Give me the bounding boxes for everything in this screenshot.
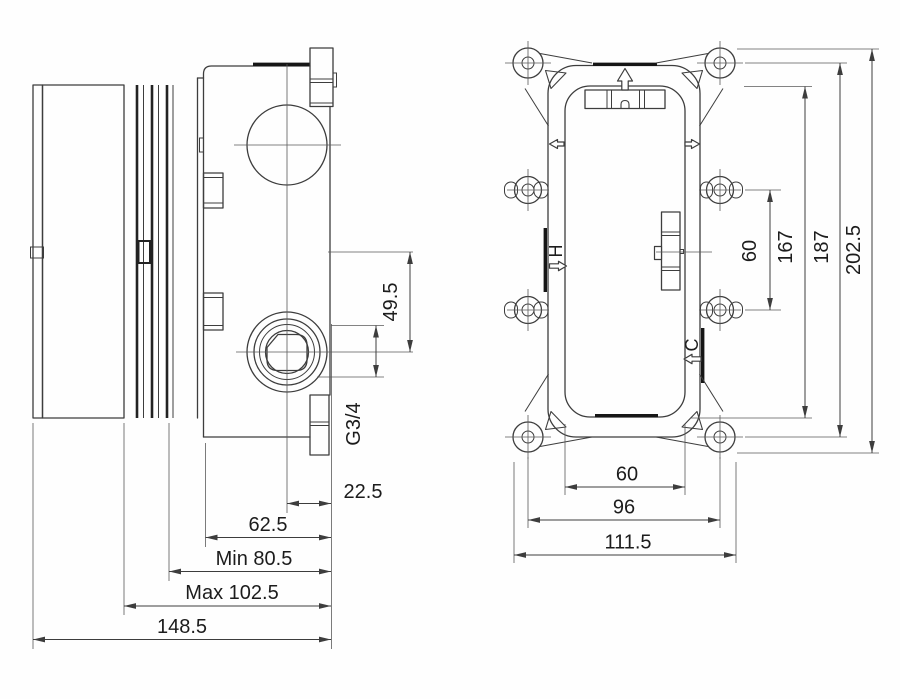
technical-drawing-canvas: 49.5 G3/4 22.5 62.5 — [0, 0, 900, 699]
mounting-holes — [505, 41, 743, 459]
dim-62-5-label: 62.5 — [249, 514, 288, 536]
dim-min-80-5-label: Min 80.5 — [216, 548, 293, 570]
dim-49-5-label: 49.5 — [380, 283, 402, 322]
dim-22-5-label: 22.5 — [344, 481, 383, 503]
dim-60-horizontal: 60 — [565, 464, 685, 488]
cold-flow-arrow-icon — [684, 354, 701, 363]
center-stop-piece — [655, 212, 713, 290]
dim-60-horizontal-label: 60 — [616, 464, 638, 486]
dim-60-vertical: 60 — [739, 190, 770, 310]
mounting-hole-top-left — [505, 41, 551, 85]
mounting-hole-mid-left-lower — [507, 289, 549, 331]
dim-22-5: 22.5 — [287, 481, 382, 504]
front-right-dimensions: 60 167 187 202.5 — [690, 49, 879, 453]
top-clamp — [585, 69, 665, 109]
dim-62-5: 62.5 — [206, 514, 332, 538]
dim-96: 96 — [528, 497, 720, 521]
plate-clip — [139, 241, 151, 263]
up-arrow-icon — [618, 69, 633, 91]
cold-label: C — [682, 339, 702, 352]
mounting-hole-top-right — [697, 41, 743, 85]
dim-202-5-label: 202.5 — [843, 225, 865, 275]
dim-max-102-5: Max 102.5 — [124, 582, 331, 606]
dim-187-label: 187 — [811, 230, 833, 263]
dim-min-80-5: Min 80.5 — [169, 548, 331, 572]
side-view: 49.5 G3/4 22.5 62.5 — [31, 48, 414, 649]
mounting-hole-mid-left-upper — [507, 169, 549, 211]
rear-lug-lower — [204, 293, 224, 330]
dim-60-vertical-label: 60 — [739, 240, 761, 262]
bracket-inner-opening — [565, 86, 685, 417]
rear-lug-upper — [204, 173, 224, 208]
right-flow-arrow-icon — [685, 140, 700, 149]
bracket-frame — [505, 54, 743, 447]
bottom-outlet-block — [310, 395, 329, 455]
hot-flow-arrow-icon — [550, 261, 567, 270]
dim-148-5-label: 148.5 — [157, 616, 207, 638]
dim-167: 167 — [775, 87, 805, 419]
dim-g34-label: G3/4 — [343, 402, 365, 445]
middle-hole-wings — [505, 182, 743, 318]
bracket-outer-flange — [548, 66, 700, 438]
dim-g34: G3/4 — [317, 326, 384, 446]
dim-49-5: 49.5 — [380, 252, 410, 352]
side-dimensions: 49.5 G3/4 22.5 62.5 — [33, 252, 410, 649]
top-port-circle — [234, 105, 341, 185]
dim-148-5: 148.5 — [33, 616, 331, 640]
plaster-plate — [31, 78, 204, 418]
dim-96-label: 96 — [613, 497, 635, 519]
stop-notch — [655, 247, 662, 260]
left-flow-arrow-icon — [550, 140, 565, 149]
dim-max-102-5-label: Max 102.5 — [185, 582, 278, 604]
mounting-hole-bottom-left — [505, 415, 551, 459]
dim-167-label: 167 — [775, 230, 797, 263]
mounting-hole-bottom-right — [697, 415, 743, 459]
dim-111-5-label: 111.5 — [604, 532, 651, 554]
mounting-hole-mid-right-upper — [699, 169, 741, 211]
mounting-hole-mid-right-lower — [699, 289, 741, 331]
front-view: H C 60 167 — [505, 41, 880, 563]
dim-111-5: 111.5 — [514, 532, 736, 556]
top-outlet-block — [310, 48, 337, 107]
hot-label: H — [546, 245, 566, 258]
dim-187: 187 — [811, 63, 840, 437]
technical-drawing-page: 49.5 G3/4 22.5 62.5 — [0, 0, 900, 699]
valve-body — [200, 48, 337, 455]
dim-202-5: 202.5 — [843, 49, 872, 453]
